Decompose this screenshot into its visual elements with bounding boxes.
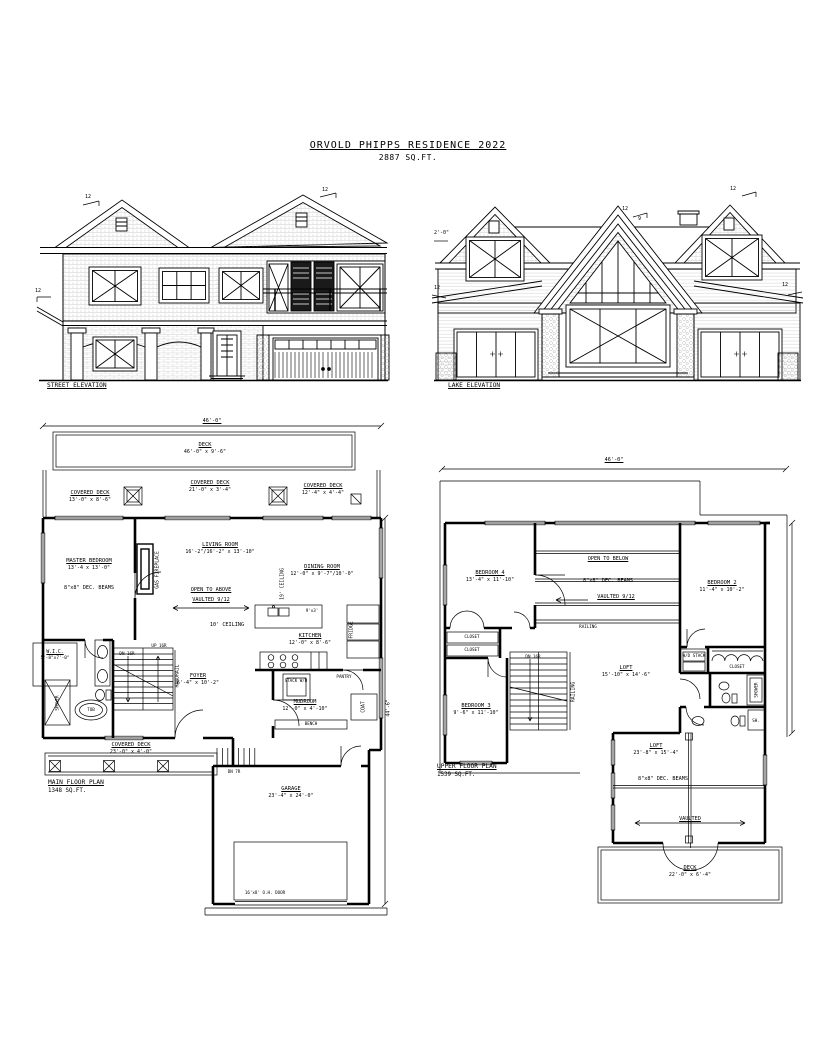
note-vaulted-upper: VAULTED 9/12 <box>597 594 634 600</box>
room-label-deck-upper: DECK22'-0" x 6'-4" <box>669 865 711 878</box>
lake-elevation-drawing <box>430 185 805 390</box>
dim-width: 46'-0" <box>203 418 222 424</box>
note-shower-upper: SHOWER <box>754 682 759 697</box>
room-label-bedroom-3: BEDROOM 39'-6" x 11'-10" <box>453 703 498 716</box>
room-label-bedroom-2: BEDROOM 211'-4" x 10'-2" <box>699 580 744 593</box>
room-label-deck: DECK46'-0" x 9'-6" <box>184 442 226 455</box>
note-coat: COAT <box>362 701 367 713</box>
pitch-mark: 12 <box>782 282 788 288</box>
room-label-covered-deck-mid: COVERED DECK21'-0" x 3'-4" <box>189 480 231 493</box>
main-floor-plan: 46'-0" DECK46'-0" x 9'-6" COVERED DECK13… <box>25 418 395 918</box>
room-label-covered-deck-left: COVERED DECK13'-0" x 8'-6" <box>69 490 111 503</box>
room-label-mudroom: MUDROOM12'-0" x 4'-10" <box>282 699 327 712</box>
note-open-to-below: OPEN TO BELOW <box>588 556 629 562</box>
room-label-covered-deck-right: COVERED DECK12'-4" x 4'-4" <box>302 483 344 496</box>
note-railing: RAILING <box>579 624 597 629</box>
note-ceiling-19: 19' CEILING <box>281 568 286 600</box>
upper-floor-area: 1539 SQ.FT. <box>437 772 475 778</box>
lake-elevation-caption: LAKE ELEVATION <box>448 382 500 389</box>
note-open-to-above: OPEN TO ABOVE <box>191 587 232 593</box>
pitch-mark: 12 <box>35 288 41 294</box>
note-up-stairs: UP 16R <box>151 643 166 648</box>
note-dn-stairs-upper: DN 16R <box>525 654 540 659</box>
note-bench: BENCH <box>305 721 318 726</box>
note-closet-a: CLOSET <box>464 634 479 639</box>
pitch-mark: 12 <box>730 186 736 192</box>
room-label-covered-deck-front: COVERED DECK23'-0" x 4'-0" <box>110 742 152 755</box>
note-dn-garage: DN 7R <box>228 769 241 774</box>
note-sh: SH. <box>752 718 760 723</box>
note-stair-railing: RAILING <box>572 682 577 702</box>
sheet-total-area: 2887 SQ.FT. <box>379 153 437 162</box>
pitch-mark: 12 <box>85 194 91 200</box>
note-beams-loft: 8"x8" DEC. BEAMS <box>638 776 688 782</box>
street-elevation-caption: STREET ELEVATION <box>47 382 107 389</box>
overhang-dim: 2'-0" <box>434 230 449 236</box>
room-label-foyer: FOYER6'-4" x 10'-2" <box>177 673 219 686</box>
main-floor-caption: MAIN FLOOR PLAN <box>48 779 104 786</box>
dim-depth: 44'-6" <box>387 699 392 716</box>
note-closet-b: CLOSET <box>464 647 479 652</box>
upper-floor-caption: UPPER FLOOR PLAN <box>437 763 497 770</box>
lake-elevation: 12 9 12 2'-0" 12 12 LAKE ELEVATION <box>430 185 805 390</box>
note-gas-fireplace: GAS FIREPLACE <box>156 551 161 589</box>
room-label-loft-lower: LOFT23'-8" x 15'-4" <box>633 743 678 756</box>
note-vaulted: VAULTED 9/12 <box>192 597 229 603</box>
note-beams-upper: 8"x8" DEC. BEAMS <box>583 578 633 584</box>
room-label-kitchen: KITCHEN12'-0" x 8'-6" <box>289 633 331 646</box>
dim-width-upper: 46'-0" <box>605 457 624 463</box>
room-label-garage: GARAGE23'-4" x 24'-0" <box>268 786 313 799</box>
note-shower: SHOWER <box>55 695 60 710</box>
room-label-dining-room: DINING ROOM12'-0" x 9'-7"/10'-0" <box>290 564 353 577</box>
room-label-bedroom-4: BEDROOM 413'-4" x 11'-10" <box>466 570 514 583</box>
note-wd-stack: W/D STACK <box>682 654 706 659</box>
main-floor-area: 1348 SQ.FT. <box>48 788 86 794</box>
note-closet-bed2: CLOSET <box>729 664 744 669</box>
room-label-master-bedroom: MASTER BEDROOM13'-4 x 13'-0" <box>66 558 111 571</box>
note-pantry: PANTRY <box>336 674 351 679</box>
blueprint-sheet: { "sheet": { "title": "ORVOLD PHIPPS RES… <box>0 0 816 1056</box>
note-handrail: HANDRAIL <box>176 664 181 687</box>
street-elevation: 12 12 12 STREET ELEVATION <box>35 185 390 390</box>
note-dn-stairs: DN 16R <box>119 651 134 656</box>
pitch-mark: 9 <box>638 216 641 222</box>
note-oh-door: 16'x8' O.H. DOOR <box>245 890 285 895</box>
pitch-mark: 12 <box>322 187 328 193</box>
upper-floor-plan: 46'-0" BEDROOM 413'-4" x 11'-10" OPEN TO… <box>430 455 810 915</box>
pitch-mark: 12 <box>434 285 440 291</box>
note-stack-wd: STACK W/D <box>284 679 308 684</box>
room-label-wic: W.I.C.5'-8"x7'-0" <box>40 650 69 661</box>
note-ceiling-10: 10' CEILING <box>210 622 244 628</box>
room-label-living-room: LIVING ROOM16'-2"/16'-2" x 13'-10" <box>185 542 254 555</box>
sheet-title: ORVOLD PHIPPS RESIDENCE 2022 <box>310 140 507 151</box>
pitch-mark: 12 <box>622 206 628 212</box>
room-label-loft: LOFT15'-10" x 14'-6" <box>602 665 650 678</box>
note-fridge: FRIDGE <box>350 621 355 638</box>
note-tub: TUB <box>87 707 95 712</box>
note-beams: 8"x8" DEC. BEAMS <box>64 585 114 591</box>
note-island: 9'x3' <box>306 608 319 613</box>
note-vaulted-loft: VAULTED <box>679 816 701 822</box>
street-elevation-drawing <box>35 185 390 390</box>
